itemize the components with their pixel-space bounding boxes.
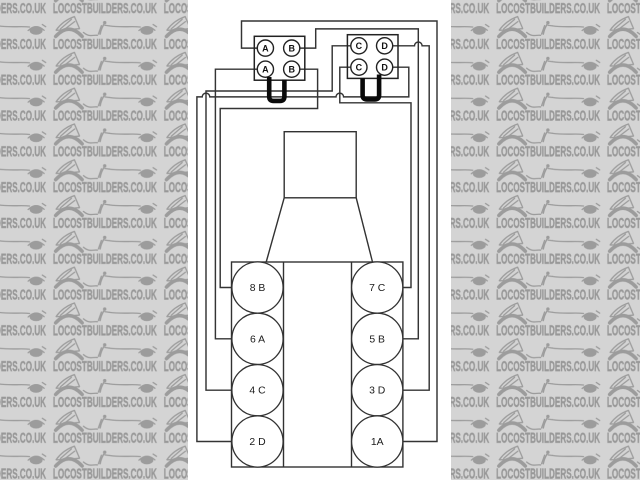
svg-text:C: C xyxy=(356,41,363,51)
svg-text:D: D xyxy=(381,63,388,73)
svg-text:7 C: 7 C xyxy=(369,283,386,294)
svg-text:6 A: 6 A xyxy=(250,334,265,345)
svg-text:3 D: 3 D xyxy=(369,386,385,397)
svg-text:2 D: 2 D xyxy=(249,437,265,448)
svg-text:B: B xyxy=(288,44,295,54)
svg-text:D: D xyxy=(381,41,388,51)
svg-text:A: A xyxy=(262,65,269,75)
svg-text:8 B: 8 B xyxy=(250,283,266,294)
svg-text:A: A xyxy=(262,44,269,54)
svg-text:1A: 1A xyxy=(371,437,384,448)
svg-text:4 C: 4 C xyxy=(249,386,266,397)
svg-text:5 B: 5 B xyxy=(369,334,385,345)
svg-text:B: B xyxy=(288,65,295,75)
svg-text:C: C xyxy=(356,63,363,73)
